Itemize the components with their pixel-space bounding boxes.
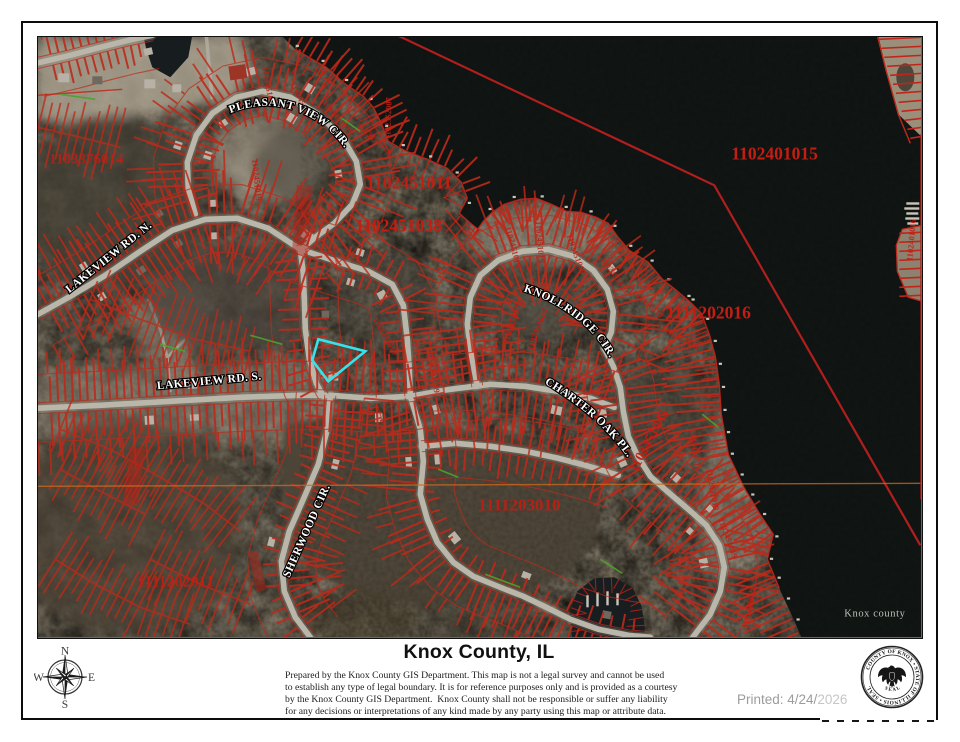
svg-text:S: S xyxy=(62,699,68,708)
svg-text:1102352007: 1102352007 xyxy=(382,96,393,139)
svg-text:E: E xyxy=(88,672,95,684)
svg-text:1103376014: 1103376014 xyxy=(49,151,124,167)
svg-text:SEAL: SEAL xyxy=(884,685,903,693)
svg-text:Knox county: Knox county xyxy=(844,608,905,619)
svg-text:1111203010: 1111203010 xyxy=(478,495,560,514)
svg-text:1111202016: 1111202016 xyxy=(666,302,751,322)
svg-text:1102451011: 1102451011 xyxy=(366,172,452,192)
svg-text:1102451038: 1102451038 xyxy=(355,215,442,235)
svg-text:W: W xyxy=(34,672,44,684)
svg-text:1102401015: 1102401015 xyxy=(731,143,818,163)
svg-text:1111202011: 1111202011 xyxy=(137,573,213,590)
